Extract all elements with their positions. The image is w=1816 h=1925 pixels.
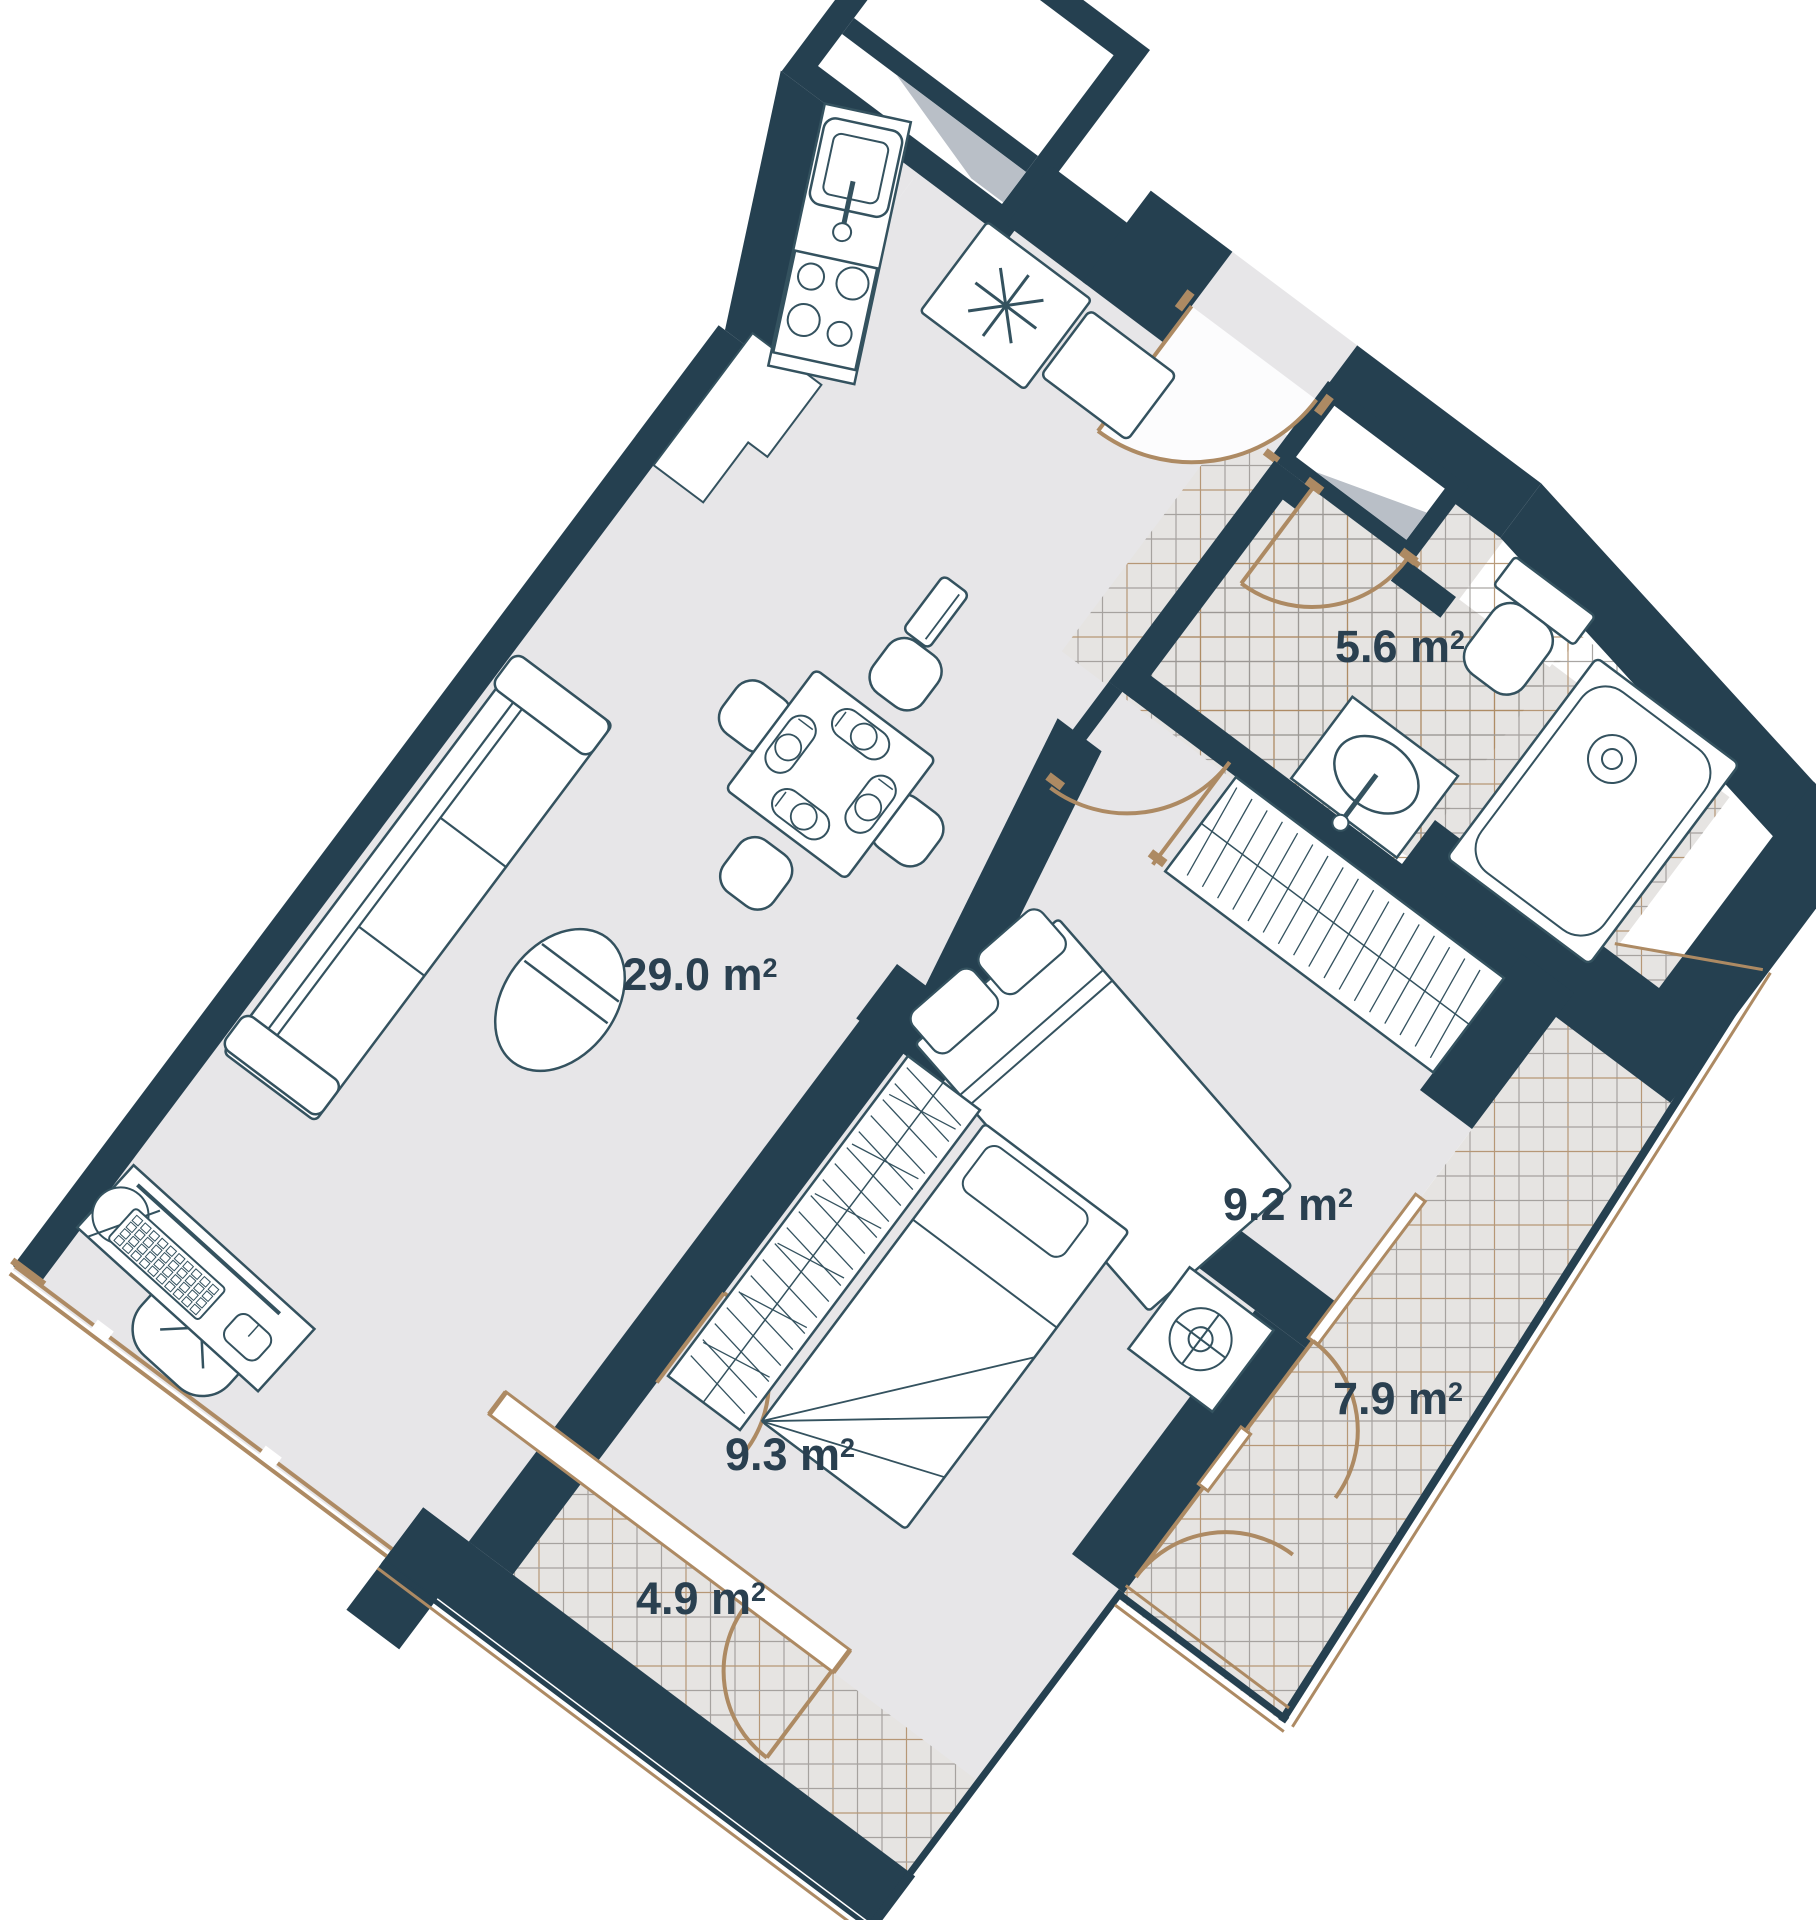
svg-text:9.3 m2: 9.3 m2 xyxy=(725,1429,855,1480)
svg-text:9.2 m2: 9.2 m2 xyxy=(1223,1179,1353,1230)
svg-text:7.9 m2: 7.9 m2 xyxy=(1333,1373,1463,1424)
svg-text:5.6 m2: 5.6 m2 xyxy=(1335,621,1465,672)
svg-text:4.9 m2: 4.9 m2 xyxy=(636,1573,766,1624)
svg-text:29.0 m2: 29.0 m2 xyxy=(622,949,777,1000)
